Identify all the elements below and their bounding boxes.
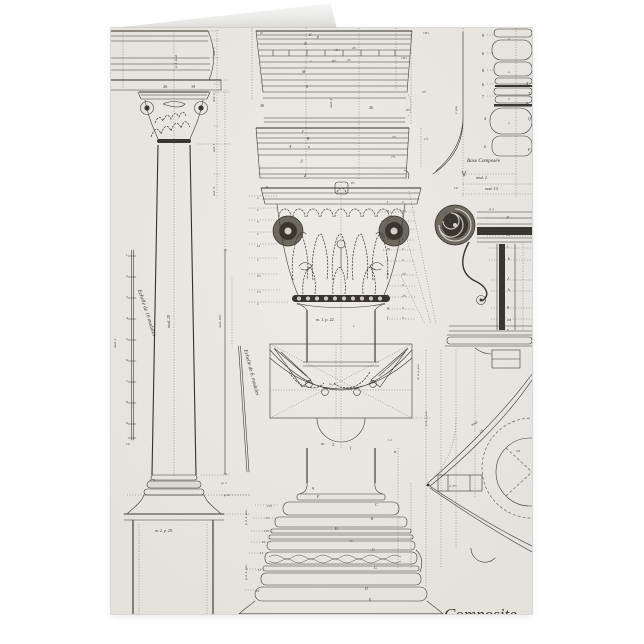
- engraving-label: 2.: [332, 442, 335, 447]
- engraving-label: 8½: [332, 59, 337, 63]
- engraving-label: 26: [163, 84, 167, 89]
- scale-tick-label: 9: [126, 421, 128, 425]
- product-photo-scene: 2619p. 4. mod.mod. 20mod. 2.mod. 16½Eche…: [0, 0, 644, 644]
- engraving-label: 6: [482, 82, 484, 87]
- engraving-label: mod. 1.: [212, 143, 216, 152]
- engraving-label: m. 1: [221, 481, 227, 485]
- dim-table-value: 2½: [402, 294, 407, 298]
- dim-table-letter: m: [387, 247, 390, 251]
- caption-composite: Composite: [444, 605, 517, 614]
- engraving-label: p: [506, 214, 509, 219]
- engraving-label: N: [303, 42, 307, 46]
- scale-tick-label: 3: [126, 295, 128, 299]
- architectural-engraving: 2619p. 4. mod.mod. 20mod. 2.mod. 16½Eche…: [111, 28, 532, 614]
- engraving-label: 12½: [267, 504, 273, 508]
- engraving-label: 12½: [334, 48, 340, 52]
- engraving-label: u: [266, 184, 268, 189]
- engraving-label: p. 3.: [223, 493, 230, 497]
- dim-table-letter: g: [387, 306, 389, 310]
- engraving-label: k: [508, 256, 510, 261]
- engraving-label: m. 2. p. 29.: [155, 528, 173, 533]
- engraving-label: 8: [482, 68, 484, 73]
- engraving-label: X: [288, 144, 292, 149]
- engraving-label: S: [306, 84, 308, 89]
- engraving-label: F: [527, 147, 531, 152]
- engraving-label: mod. ⅙: [212, 186, 216, 196]
- engraving-label: h: [508, 287, 510, 292]
- engraving-label: 13: [349, 539, 353, 543]
- engraving-label: y: [301, 128, 304, 133]
- dim-table-letter: h: [387, 294, 389, 298]
- scale-tick-label: 6: [126, 358, 128, 362]
- engraving-label: Base Composée: [467, 158, 501, 164]
- engraving-label: Q: [528, 116, 531, 121]
- engraving-label: p. d. y. pou: [424, 411, 428, 427]
- engraving-label: mod. 20: [166, 315, 171, 328]
- engraving-label: e: [507, 327, 509, 332]
- engraving-label: X: [525, 81, 529, 86]
- engraving-label: 8: [482, 33, 484, 38]
- engraving-label: m. 3: [149, 478, 155, 482]
- engraving-label: p. d. 4. pou.: [244, 509, 248, 526]
- engraving-label: 11½: [264, 529, 270, 533]
- dim-table-letter: q: [387, 209, 389, 213]
- engraving-label: C: [309, 32, 312, 37]
- engraving-label: p: [316, 34, 319, 39]
- engraving-label: mod. 1½: [485, 187, 498, 191]
- engraving-label: 2½: [422, 90, 427, 94]
- engraving-label: G: [372, 548, 375, 552]
- engraving-label: H: [334, 527, 338, 531]
- engraving-label: J: [507, 276, 509, 281]
- engraving-label: 14½: [401, 56, 407, 60]
- scale-tick-label: 10: [126, 442, 130, 446]
- engraving-label: u: [308, 145, 310, 149]
- engraving-label: mod. 4: [329, 98, 333, 108]
- engraving-label: 7: [482, 94, 484, 99]
- scale-tick-label: 4: [126, 316, 128, 320]
- dim-table-letter: n: [387, 237, 389, 241]
- engraving-label: 2.6: [516, 449, 520, 453]
- engraving-label: 1: [310, 59, 312, 63]
- scale-tick-label: 1: [126, 253, 128, 257]
- engraving-label: F: [316, 494, 320, 499]
- scale-tick-label: 8: [126, 400, 128, 404]
- engraving-label: mod. 2.: [476, 175, 488, 180]
- engraving-label: 20: [352, 46, 356, 50]
- engraving-label: B: [394, 450, 396, 454]
- engraving-label: 19: [191, 84, 195, 89]
- engraving-label: p. 4. mod.: [174, 54, 178, 69]
- engraving-label: g. d. 4. pou.: [244, 564, 248, 580]
- engraving-label: G: [374, 566, 377, 570]
- engraving-label: m. d. g. pou: [416, 364, 420, 380]
- card-back-panel: [110, 2, 340, 29]
- engraving-label: 10: [260, 31, 264, 35]
- dim-table-letter: p: [386, 218, 389, 222]
- engraving-label: mod. ½: [212, 46, 216, 56]
- engraving-label: 2½: [392, 135, 397, 139]
- engraving-label: m: [507, 232, 510, 237]
- engraving-label: m. 1. p. 22.: [316, 317, 335, 322]
- engraving-label: m. 2: [329, 382, 335, 386]
- engraving-label: 2. 2½: [449, 484, 457, 488]
- engraving-label: 26: [369, 105, 373, 110]
- scale-tick-label: 7: [126, 379, 128, 383]
- engraving-label: 1 2: [388, 438, 392, 442]
- engraving-label: 6: [484, 144, 486, 149]
- dim-table-value: 2½: [402, 209, 407, 213]
- scale-tick-label: 2: [126, 274, 128, 278]
- engraving-label: g: [507, 304, 509, 309]
- engraving-label: mod. 16½: [218, 314, 222, 328]
- dim-table-value: 2½: [402, 272, 407, 276]
- engraving-label: q: [312, 485, 314, 490]
- engraving-label: 23: [347, 58, 351, 62]
- engraving-label: 8½: [406, 108, 411, 112]
- engraving-label: 10½: [423, 31, 429, 35]
- scale-tick-label: 5: [126, 337, 128, 341]
- engraving-label: 1½: [424, 137, 429, 141]
- engraving-label: 1. pou: [454, 106, 458, 114]
- engraving-label: m.: [321, 441, 325, 446]
- engraving-label: R: [525, 101, 529, 106]
- engraving-label: mod. ⅓: [212, 92, 216, 102]
- engraving-label: 30: [260, 103, 264, 108]
- engraving-label: 16: [454, 186, 458, 190]
- engraving-label: 4: [484, 116, 486, 121]
- engraving-label: 2.6: [507, 318, 511, 322]
- dim-table-letter: o: [387, 226, 389, 230]
- engraving-label: mod. 2.: [113, 338, 117, 348]
- engraving-label: 12: [257, 244, 261, 248]
- greeting-card-front: 2619p. 4. mod.mod. 20mod. 2.mod. 16½Eche…: [111, 28, 532, 614]
- engraving-label: 7½: [391, 155, 396, 159]
- dim-table-letter: l: [387, 258, 388, 262]
- engraving-label: 6: [482, 51, 484, 56]
- engraving-label: D: [364, 587, 368, 591]
- engraving-label: q. 4: [489, 207, 494, 211]
